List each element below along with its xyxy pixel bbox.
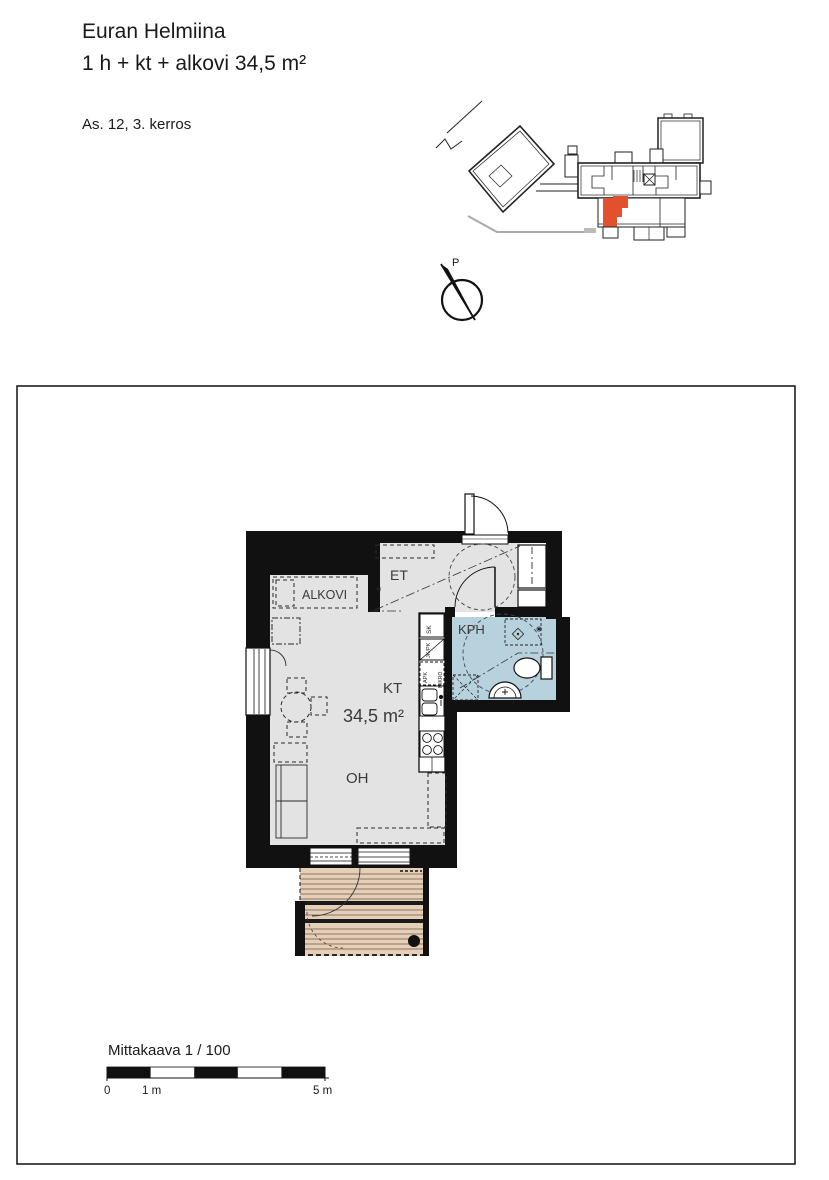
scale-segment (194, 1067, 238, 1078)
scale-caption: Mittakaava 1 / 100 (108, 1042, 231, 1059)
floorplan-page: Euran Helmiina 1 h + kt + alkovi 34,5 m²… (0, 0, 829, 1180)
entry-door-leaf (465, 494, 474, 534)
site-bump (700, 181, 711, 194)
wall-top-entry (378, 531, 465, 543)
balcony-deck (300, 868, 423, 956)
entry-door-swing-arc (471, 496, 508, 533)
wall-top-left (246, 531, 380, 575)
room-label-kph: KPH (458, 622, 485, 637)
label-sk: SK (426, 625, 433, 634)
toilet (514, 657, 552, 679)
room-label-kt: KT (383, 680, 402, 697)
scale-segment (281, 1067, 325, 1078)
wall-bathroom-top-b (495, 607, 556, 617)
wall-right-upper (546, 531, 562, 619)
sink-faucet (439, 695, 442, 698)
scale-bar: Mittakaava 1 / 100 0 1 m 5 m (104, 1042, 332, 1097)
scale-label-5m: 5 m (313, 1085, 332, 1097)
window-left (246, 648, 270, 715)
closet-lower (518, 590, 546, 607)
wall-top-right (508, 531, 546, 543)
site-bump (650, 149, 663, 163)
wall-right-lower (445, 712, 457, 845)
balcony (295, 868, 429, 956)
stairwell-x-box (644, 174, 655, 185)
site-bump (615, 152, 632, 163)
scale-segment (107, 1067, 151, 1078)
entry-door (462, 494, 508, 544)
wall-bottom-left (246, 845, 310, 868)
entry-threshold (462, 535, 508, 544)
building-block-topright (658, 118, 703, 163)
window-bottom-left (310, 848, 352, 865)
building-wing-left-core (489, 165, 512, 187)
site-bump (603, 227, 618, 238)
site-boundary-zigzag (436, 139, 462, 149)
site-gray-tick (584, 228, 596, 233)
floor-plan: SK JK/PK APK MIKRO (246, 494, 570, 956)
balcony-door-bottom (358, 848, 410, 865)
building-wing-left-inner (473, 131, 549, 207)
balcony-drain (408, 935, 420, 947)
wall-kitchen-bathroom (445, 607, 452, 700)
balcony-wall-right (423, 868, 429, 956)
wall-left-lower (246, 715, 270, 845)
north-label: P (452, 257, 459, 269)
label-jk-pk: JK/PK (426, 642, 432, 658)
building-bar-main (578, 163, 700, 198)
north-arrow: P (441, 257, 482, 321)
wall-bathroom-bottom (445, 700, 570, 712)
balcony-wall-left (295, 901, 305, 956)
scale-label-0: 0 (104, 1085, 110, 1097)
site-bump (667, 227, 685, 237)
room-label-et: ET (390, 567, 408, 583)
balcony-band (300, 901, 423, 905)
wall-bottom-right (410, 845, 457, 868)
wall-left-upper (246, 575, 270, 648)
site-tower (565, 155, 578, 177)
site-boundary-line (447, 101, 482, 133)
room-label-alkovi: ALKOVI (302, 588, 347, 602)
area-label: 34,5 m² (343, 706, 404, 726)
drawing-canvas: P (0, 0, 829, 1180)
label-apk: APK (423, 672, 429, 683)
label-mikro: MIKRO (438, 672, 444, 689)
balcony-band (300, 919, 423, 923)
site-terrace-line (468, 216, 590, 232)
hall-closets (518, 545, 546, 607)
site-plan (436, 101, 711, 240)
wall-right-bathroom (556, 617, 570, 712)
wall-window-mullion (352, 846, 358, 868)
wall-stub-alkovi (368, 543, 380, 612)
scale-label-1m: 1 m (142, 1085, 161, 1097)
site-tower-top (568, 146, 577, 154)
kitchen-strip: SK JK/PK APK MIKRO (419, 613, 445, 772)
room-label-oh: OH (346, 770, 369, 787)
